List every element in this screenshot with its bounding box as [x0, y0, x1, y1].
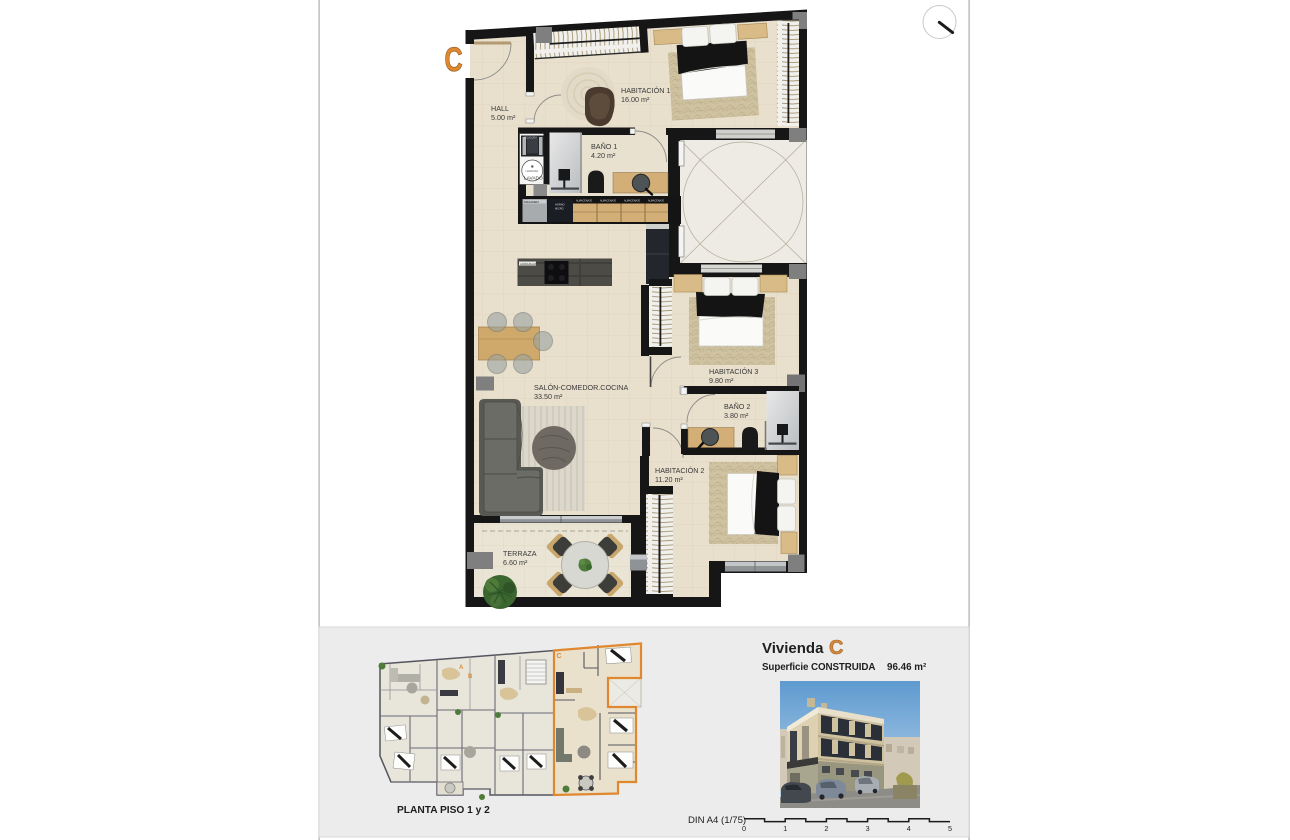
svg-text:4: 4: [907, 824, 911, 833]
svg-text:LAVADO: LAVADO: [524, 176, 543, 182]
svg-text:96.46 m²: 96.46 m²: [887, 662, 927, 673]
svg-text:3.80 m²: 3.80 m²: [724, 411, 749, 420]
svg-text:2: 2: [824, 824, 828, 833]
svg-text:C: C: [557, 653, 562, 660]
svg-text:FREGADERO: FREGADERO: [524, 201, 539, 204]
svg-text:9.80 m²: 9.80 m²: [709, 376, 734, 385]
svg-text:33.50 m²: 33.50 m²: [534, 392, 563, 401]
svg-text:HABITACIÓN 1: HABITACIÓN 1: [621, 86, 670, 95]
svg-text:TERRAZA: TERRAZA: [503, 549, 537, 558]
svg-text:PLANTA PISO 1 y 2: PLANTA PISO 1 y 2: [397, 805, 490, 816]
svg-text:16.00 m²: 16.00 m²: [621, 95, 650, 104]
svg-text:C: C: [829, 637, 843, 659]
svg-text:5: 5: [948, 824, 952, 833]
svg-text:A: A: [459, 665, 464, 671]
svg-text:ALMACENAJE: ALMACENAJE: [600, 200, 616, 203]
svg-text:4.20 m²: 4.20 m²: [591, 151, 616, 160]
svg-text:Vivienda: Vivienda: [762, 640, 824, 657]
svg-text:11.20 m²: 11.20 m²: [655, 475, 683, 484]
svg-text:BAÑO 2: BAÑO 2: [724, 402, 750, 411]
svg-text:SALÓN-COMEDOR.COCINA: SALÓN-COMEDOR.COCINA: [534, 383, 628, 392]
svg-text:DIN A4 (1/75): DIN A4 (1/75): [688, 815, 746, 826]
svg-text:HABITACIÓN 3: HABITACIÓN 3: [709, 367, 758, 376]
svg-text:HORNO: HORNO: [555, 203, 565, 207]
svg-text:0: 0: [742, 824, 746, 833]
svg-text:5.00 m²: 5.00 m²: [491, 113, 516, 122]
svg-text:ALMACENAJE: ALMACENAJE: [624, 200, 640, 203]
svg-text:SECADORA: SECADORA: [524, 136, 538, 139]
svg-text:LAVAVAJILLAS: LAVAVAJILLAS: [520, 263, 537, 266]
svg-text:Superficie CONSTRUIDA: Superficie CONSTRUIDA: [762, 662, 875, 673]
svg-text:MICRO: MICRO: [555, 207, 564, 211]
svg-text:3: 3: [866, 824, 870, 833]
svg-text:C: C: [445, 41, 463, 79]
svg-text:1: 1: [783, 824, 787, 833]
svg-text:BAÑO 1: BAÑO 1: [591, 142, 617, 151]
svg-text:LAVADORA: LAVADORA: [526, 170, 539, 173]
svg-text:B: B: [468, 674, 473, 680]
svg-text:ALMACENAJE: ALMACENAJE: [576, 200, 592, 203]
svg-text:HALL: HALL: [491, 104, 509, 113]
svg-text:ALMACENAJE: ALMACENAJE: [648, 200, 664, 203]
svg-text:HABITACIÓN 2: HABITACIÓN 2: [655, 466, 704, 475]
svg-text:6.60 m²: 6.60 m²: [503, 558, 528, 567]
